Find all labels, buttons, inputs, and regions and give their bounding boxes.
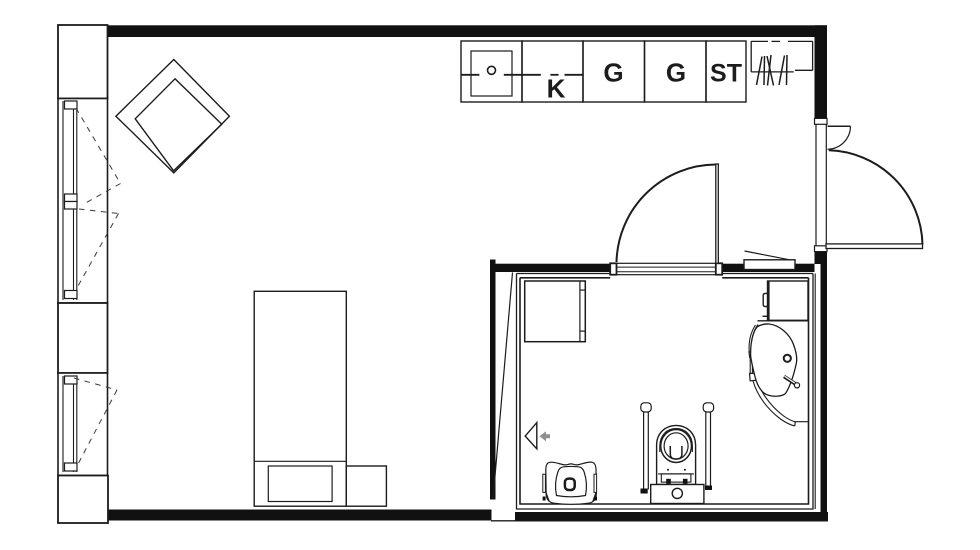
svg-text:K: K — [547, 74, 566, 104]
svg-text:G: G — [603, 57, 623, 87]
svg-text:ST: ST — [710, 59, 742, 87]
svg-text:G: G — [666, 57, 686, 87]
